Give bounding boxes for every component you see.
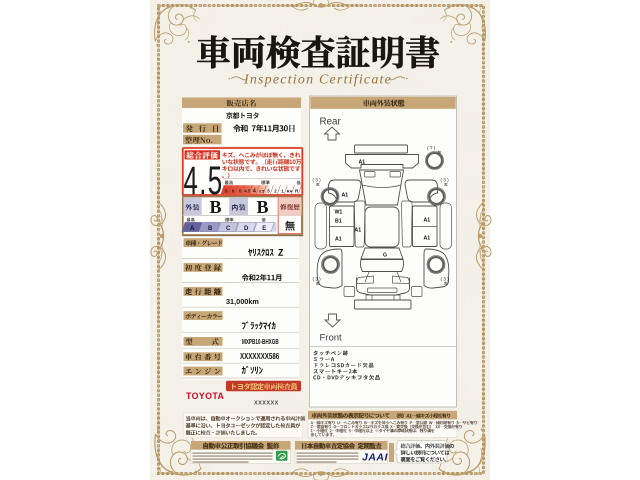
svg-text:6: 6 (232, 188, 235, 193)
svg-text:Inspection Certificate: Inspection Certificate (243, 73, 392, 88)
svg-text:( 3 ): ( 3 ) (441, 277, 450, 282)
svg-text:A1: A1 (335, 237, 342, 243)
svg-text:A1: A1 (355, 228, 362, 234)
svg-text:3: 3 (267, 188, 270, 193)
svg-text:1: 1 (281, 188, 284, 193)
svg-text:A1: A1 (424, 236, 431, 242)
svg-text:B: B (256, 197, 268, 217)
svg-text:B: B (208, 226, 213, 232)
svg-text:Front: Front (320, 333, 343, 344)
svg-text:A1: A1 (342, 193, 349, 199)
svg-text:G: G (383, 253, 387, 259)
svg-text:( 3 ): ( 3 ) (313, 277, 322, 282)
svg-text:( T ): ( T ) (427, 146, 436, 151)
svg-text:D: D (244, 226, 249, 232)
svg-text:( 3 ): ( 3 ) (441, 178, 450, 183)
svg-text:RA: RA (287, 188, 293, 193)
svg-text:31,000km: 31,000km (226, 297, 259, 306)
svg-text:A: A (190, 226, 195, 232)
svg-text:B1: B1 (335, 219, 342, 225)
svg-text:B: B (209, 197, 221, 217)
svg-text:XXXXXX: XXXXXX (254, 401, 279, 407)
svg-text:JAAI: JAAI (362, 452, 389, 464)
svg-text:A1: A1 (359, 160, 366, 166)
svg-text:E: E (262, 226, 266, 232)
svg-text:Rear: Rear (320, 116, 342, 127)
svg-text:C: C (226, 226, 231, 232)
svg-text:( 3 ): ( 3 ) (313, 178, 322, 183)
svg-text:5: 5 (239, 188, 242, 193)
svg-text:TOYOTA: TOYOTA (186, 391, 224, 401)
svg-text:S: S (225, 188, 228, 193)
svg-text:A1: A1 (424, 218, 431, 224)
svg-text:2: 2 (274, 188, 277, 193)
svg-text:XXXXXXX586: XXXXXXX586 (240, 351, 279, 361)
svg-text:W1: W1 (335, 210, 343, 216)
svg-text:MXPB10-BHXGB: MXPB10-BHXGB (242, 339, 279, 346)
